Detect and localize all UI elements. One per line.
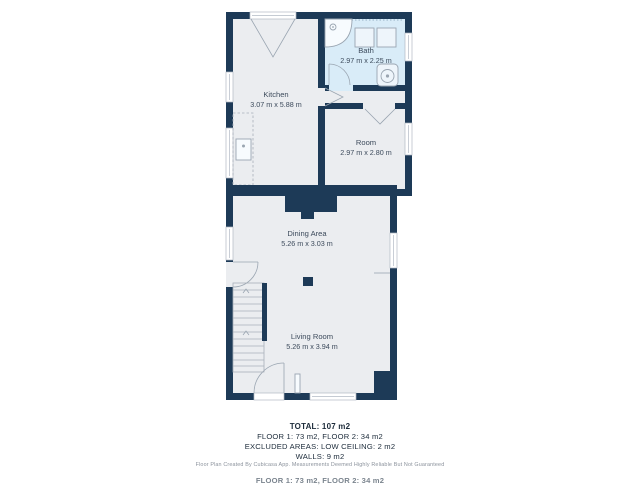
side-door-opening [226,262,233,287]
kitchen-sink-icon [236,139,251,160]
kitchen-hall-opening [318,88,325,106]
disclaimer-text: Floor Plan Created By Cubicasa App. Meas… [0,462,640,468]
room-dims: 2.97 m x 2.80 m [340,148,392,157]
kitchen-label: Kitchen [263,90,288,99]
kitchen-dims: 3.07 m x 5.88 m [250,100,302,109]
lower-floor-block [226,185,397,400]
living-room-label: Living Room [291,332,333,341]
dining-area-dims: 5.26 m x 3.03 m [281,239,333,248]
room-door-opening [363,103,395,109]
bath-door-opening [329,85,353,91]
entry-door-opening [254,393,284,400]
room-label: Room [356,138,376,147]
area-summary: TOTAL: 107 m2 FLOOR 1: 73 m2, FLOOR 2: 3… [0,423,640,461]
appliance-1-icon [355,28,374,47]
chimney-tab [301,212,314,219]
living-room-dims: 5.26 m x 3.94 m [286,342,338,351]
hallway-floor [325,91,405,103]
floor-areas-text: FLOOR 1: 73 m2, FLOOR 2: 34 m2 [257,433,383,441]
toilet-dot [386,74,389,77]
floor-plan-page: { "plan": { "rooms": [ { "name": "Kitche… [0,0,640,480]
walls-area-text: WALLS: 9 m2 [296,453,345,461]
shower-head-dot [332,26,334,28]
dining-living-floor [233,196,390,393]
excluded-areas-text: EXCLUDED AREAS: LOW CEILING: 2 m2 [245,443,396,451]
corner-block [374,371,390,393]
radiator-stub [295,374,300,393]
stair-side-wall [262,283,267,341]
chimney-block [285,196,337,212]
bath-dims: 2.97 m x 2.25 m [340,56,392,65]
appliance-2-icon [377,28,396,47]
dining-area-label: Dining Area [287,229,327,238]
structural-post [303,277,313,286]
cutoff-text: FLOOR 1: 73 m2, FLOOR 2: 34 m2 [0,476,640,485]
floor-plan-drawing: Kitchen 3.07 m x 5.88 m Bath 2.97 m x 2.… [0,0,640,420]
kitchen-faucet-dot [242,145,245,148]
total-area-text: TOTAL: 107 m2 [290,423,351,432]
bath-label: Bath [358,46,374,55]
